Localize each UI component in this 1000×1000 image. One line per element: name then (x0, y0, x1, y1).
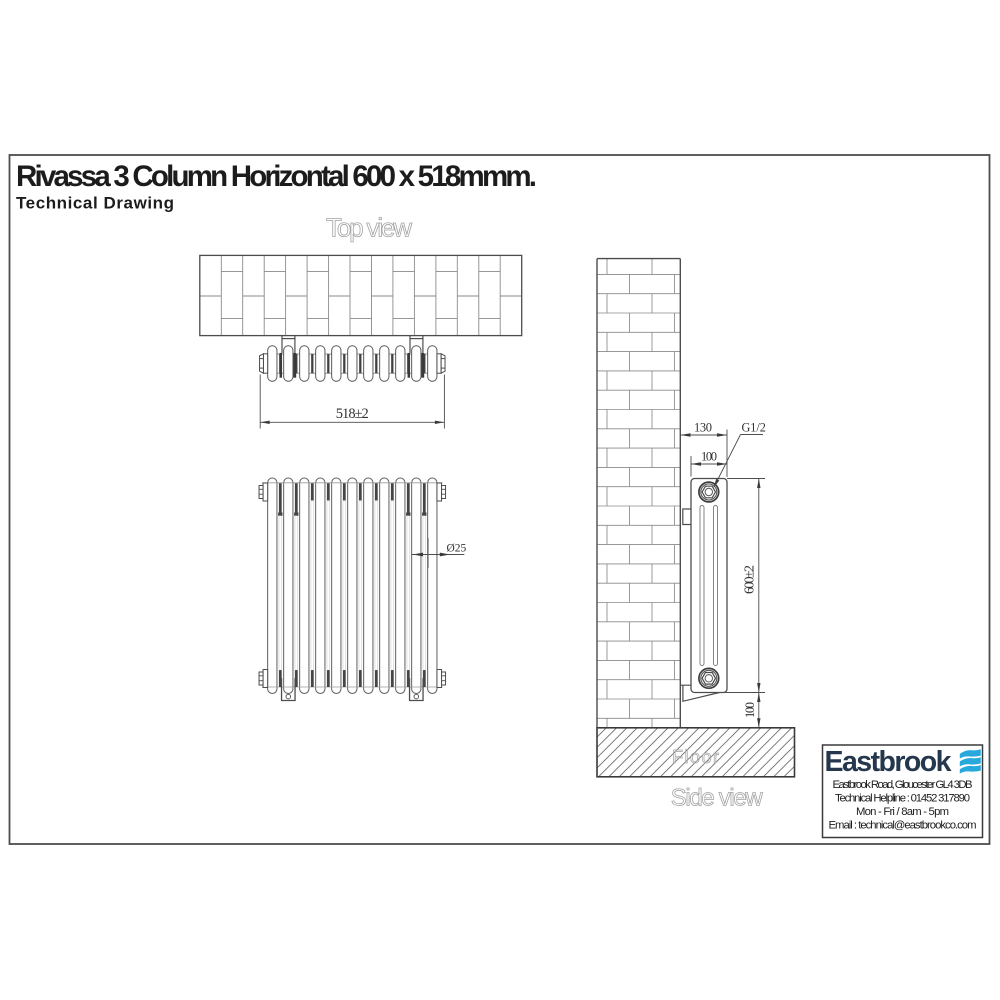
svg-text:Floor: Floor (672, 747, 719, 767)
svg-text:Technical Drawing: Technical Drawing (16, 194, 174, 213)
svg-text:Eastbrook Road, Gloucester GL4: Eastbrook Road, Gloucester GL4 3DB (833, 779, 973, 791)
svg-text:100: 100 (701, 450, 717, 464)
svg-text:Email : technical@eastbrookco.: Email : technical@eastbrookco.com (829, 820, 977, 832)
svg-text:130: 130 (694, 421, 712, 435)
svg-text:Side view: Side view (671, 785, 764, 812)
svg-text:Rivassa 3 Column Horizontal 60: Rivassa 3 Column Horizontal 600 x 518mmm… (16, 160, 537, 193)
svg-text:100: 100 (743, 702, 757, 718)
svg-text:Top view: Top view (326, 213, 412, 243)
svg-text:Technical Helpline : 01452 317: Technical Helpline : 01452 317890 (835, 792, 970, 804)
svg-text:Mon - Fri / 8am - 5pm: Mon - Fri / 8am - 5pm (856, 806, 949, 818)
svg-text:Ø25: Ø25 (447, 543, 467, 555)
svg-text:Eastbrook: Eastbrook (825, 746, 952, 778)
svg-text:G1/2: G1/2 (742, 421, 766, 435)
svg-text:518±2: 518±2 (336, 406, 369, 422)
svg-text:600±2: 600±2 (743, 565, 758, 594)
